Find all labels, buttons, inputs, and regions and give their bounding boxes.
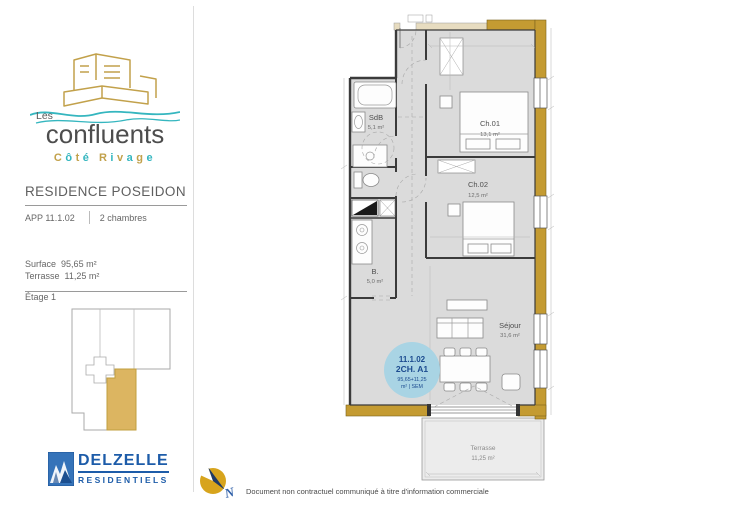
toilet-tank — [354, 172, 362, 188]
brochure-page: Les confluents Côté Rivage RESIDENCE POS… — [0, 0, 736, 520]
terrace: Terrasse 11,25 m² — [422, 418, 544, 480]
washbasin-icon — [352, 112, 365, 132]
room-label-ch02: Ch.02 — [468, 180, 488, 189]
brand-name: confluents — [30, 119, 180, 150]
terrace-label: Terrasse — [25, 271, 60, 281]
developer-logo: DELZELLE RESIDENTIELS — [48, 452, 169, 486]
svg-text:5,0 m²: 5,0 m² — [367, 279, 383, 285]
svg-text:5,1 m²: 5,1 m² — [368, 125, 384, 131]
room-label-b: B. — [371, 267, 378, 276]
brand-tagline: Côté Rivage — [30, 152, 180, 164]
brand-logo: Les confluents Côté Rivage — [30, 46, 180, 168]
bathtub-icon — [354, 82, 396, 108]
svg-text:12,5 m²: 12,5 m² — [468, 193, 488, 199]
svg-text:11.1.02: 11.1.02 — [399, 355, 426, 364]
svg-text:31,6 m²: 31,6 m² — [500, 333, 520, 339]
toilet-icon — [363, 174, 379, 187]
room-label-ch01: Ch.01 — [480, 119, 500, 128]
apartment-badge: 11.1.02 2CH. A1 95,65+11,25 m² | SEM — [384, 342, 440, 398]
armchair-icon — [502, 374, 520, 390]
nightstand-icon — [440, 96, 452, 108]
residence-title: RESIDENCE POSEIDON — [25, 184, 187, 206]
apartment-row: APP 11.1.02 2 chambres — [25, 211, 187, 224]
room-label-sejour: Séjour — [499, 321, 521, 330]
svg-text:N: N — [222, 484, 237, 501]
key-plan — [70, 308, 174, 438]
apartment-number: APP 11.1.02 — [25, 213, 75, 223]
svg-text:13,1 m²: 13,1 m² — [480, 132, 500, 138]
terrace-value: 11,25 m² — [65, 271, 100, 281]
laundry-counter — [352, 220, 372, 264]
delzelle-icon — [48, 452, 74, 486]
svg-text:95,65+11,25: 95,65+11,25 — [397, 377, 426, 383]
svg-text:Terrasse: Terrasse — [471, 445, 496, 452]
divider — [89, 211, 90, 224]
column-separator — [193, 6, 194, 492]
sofa-icon — [437, 318, 483, 338]
floor-plan: Terrasse 11,25 m² — [330, 6, 630, 490]
terrace-line: Terrasse 11,25 m² — [25, 270, 187, 282]
disclaimer-text: Document non contractuel communiqué à ti… — [246, 487, 489, 496]
dining-table-icon — [440, 356, 490, 382]
room-label-sdb: SdB — [369, 113, 383, 122]
nightstand-icon — [448, 204, 460, 216]
svg-text:11,25 m²: 11,25 m² — [471, 456, 494, 462]
surface-value: 95,65 m² — [61, 259, 97, 269]
surface-block: Surface 95,65 m² Terrasse 11,25 m² — [25, 258, 187, 292]
surface-label: Surface — [25, 259, 56, 269]
svg-text:m² | SEM: m² | SEM — [401, 384, 423, 390]
svg-text:2CH. A1: 2CH. A1 — [396, 364, 429, 374]
console-icon — [447, 300, 487, 310]
rooms-count: 2 chambres — [100, 213, 147, 223]
residence-header: RESIDENCE POSEIDON APP 11.1.02 2 chambre… — [25, 184, 187, 224]
north-compass-icon: N — [198, 466, 244, 502]
highlighted-unit — [107, 369, 136, 430]
floor-level-label: Étage 1 — [25, 292, 56, 302]
building-logo-icon — [44, 46, 164, 108]
developer-subtitle: RESIDENTIELS — [78, 475, 169, 485]
developer-name: DELZELLE — [78, 452, 169, 473]
surface-line: Surface 95,65 m² — [25, 258, 187, 270]
